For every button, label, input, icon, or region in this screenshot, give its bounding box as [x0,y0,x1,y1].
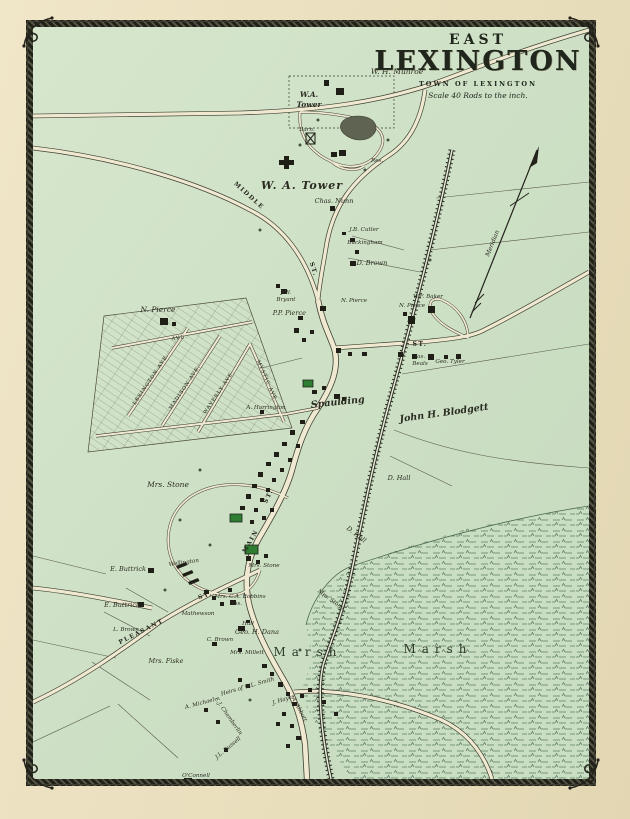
label-owner-tower: W. A. Tower [261,179,343,192]
label-owner-cutler: J.B. Cutler [348,227,378,233]
label-res: Res. [370,158,383,164]
label-hall-small: Hall [241,621,254,627]
label-owner-pierce-small: N. Pierce [340,298,368,304]
label-owner-nunn: Chas. Nunn [315,197,354,205]
label-owner-dana: Geo. H. Dana [235,628,279,636]
label-owner-fiske: Mrs. Fiske [148,657,184,665]
label-owner-bryant-2: Bryant [275,297,296,303]
label-owner-brown-c: C. Brown [207,637,234,643]
label-owner-pierce-pp: P.P. Pierce [272,309,306,317]
label-owner-millett: Mrs. Millett [229,650,264,656]
label-street-cross-abbr: ST. [413,341,428,348]
label-owner-beals-2: Beals [411,361,428,367]
label-owner-pierce-grid: N. Pierce [140,305,177,314]
label-barn: Barn. [298,127,315,133]
label-owner-robbins-2: Res. [229,601,242,607]
label-owner-harrington: A. Harrington [245,405,286,411]
label-owner-bryant-1: J.W. [280,290,292,296]
label-owner-mathewson: Mathewson [181,611,215,617]
atlas-page: { "title": { "kicker": "EAST", "name": "… [0,0,630,819]
map-canvas: Meridian W. H. Munroe W.A. Tower Barn. R… [33,27,589,779]
border-corner-ornament [568,758,604,794]
label-owner-beals-1: Jas. [414,354,425,360]
label-owner-baker: W.F. Baker [413,294,443,300]
label-tower-estate-1: W.A. [300,90,319,99]
label-owner-pierce-east: N. Pierce [398,303,426,309]
border-corner-ornament [18,758,54,794]
border-corner-ornament [568,12,604,48]
label-owner-stone-village: Mrs. Stone [247,563,280,569]
label-owner-buckingham: Buckingham [346,240,382,246]
label-owner-oconnell: O'Connell [182,773,210,779]
label-owner-robbins-1: Mrs. C.A. Robbins [213,594,265,600]
label-owner-munroe: W. H. Munroe [371,67,424,76]
label-owner-hall-upper: D. Hall [387,474,411,482]
border-corner-ornament [18,12,54,48]
label-tower-estate-2: Tower [297,100,323,109]
label-owner-buttrick-upper: E. Buttrick [109,565,146,573]
label-marsh-west: Marsh [273,645,342,659]
label-marsh-east: Marsh [403,642,472,656]
label-owner-tyler: Geo. Tyler [435,359,465,365]
label-owner-stone-west: Mrs. Stone [146,480,189,489]
label-owner-buttrick-lower: E. Buttrick [103,601,140,609]
label-owner-brown-d: D. Brown [356,259,388,267]
